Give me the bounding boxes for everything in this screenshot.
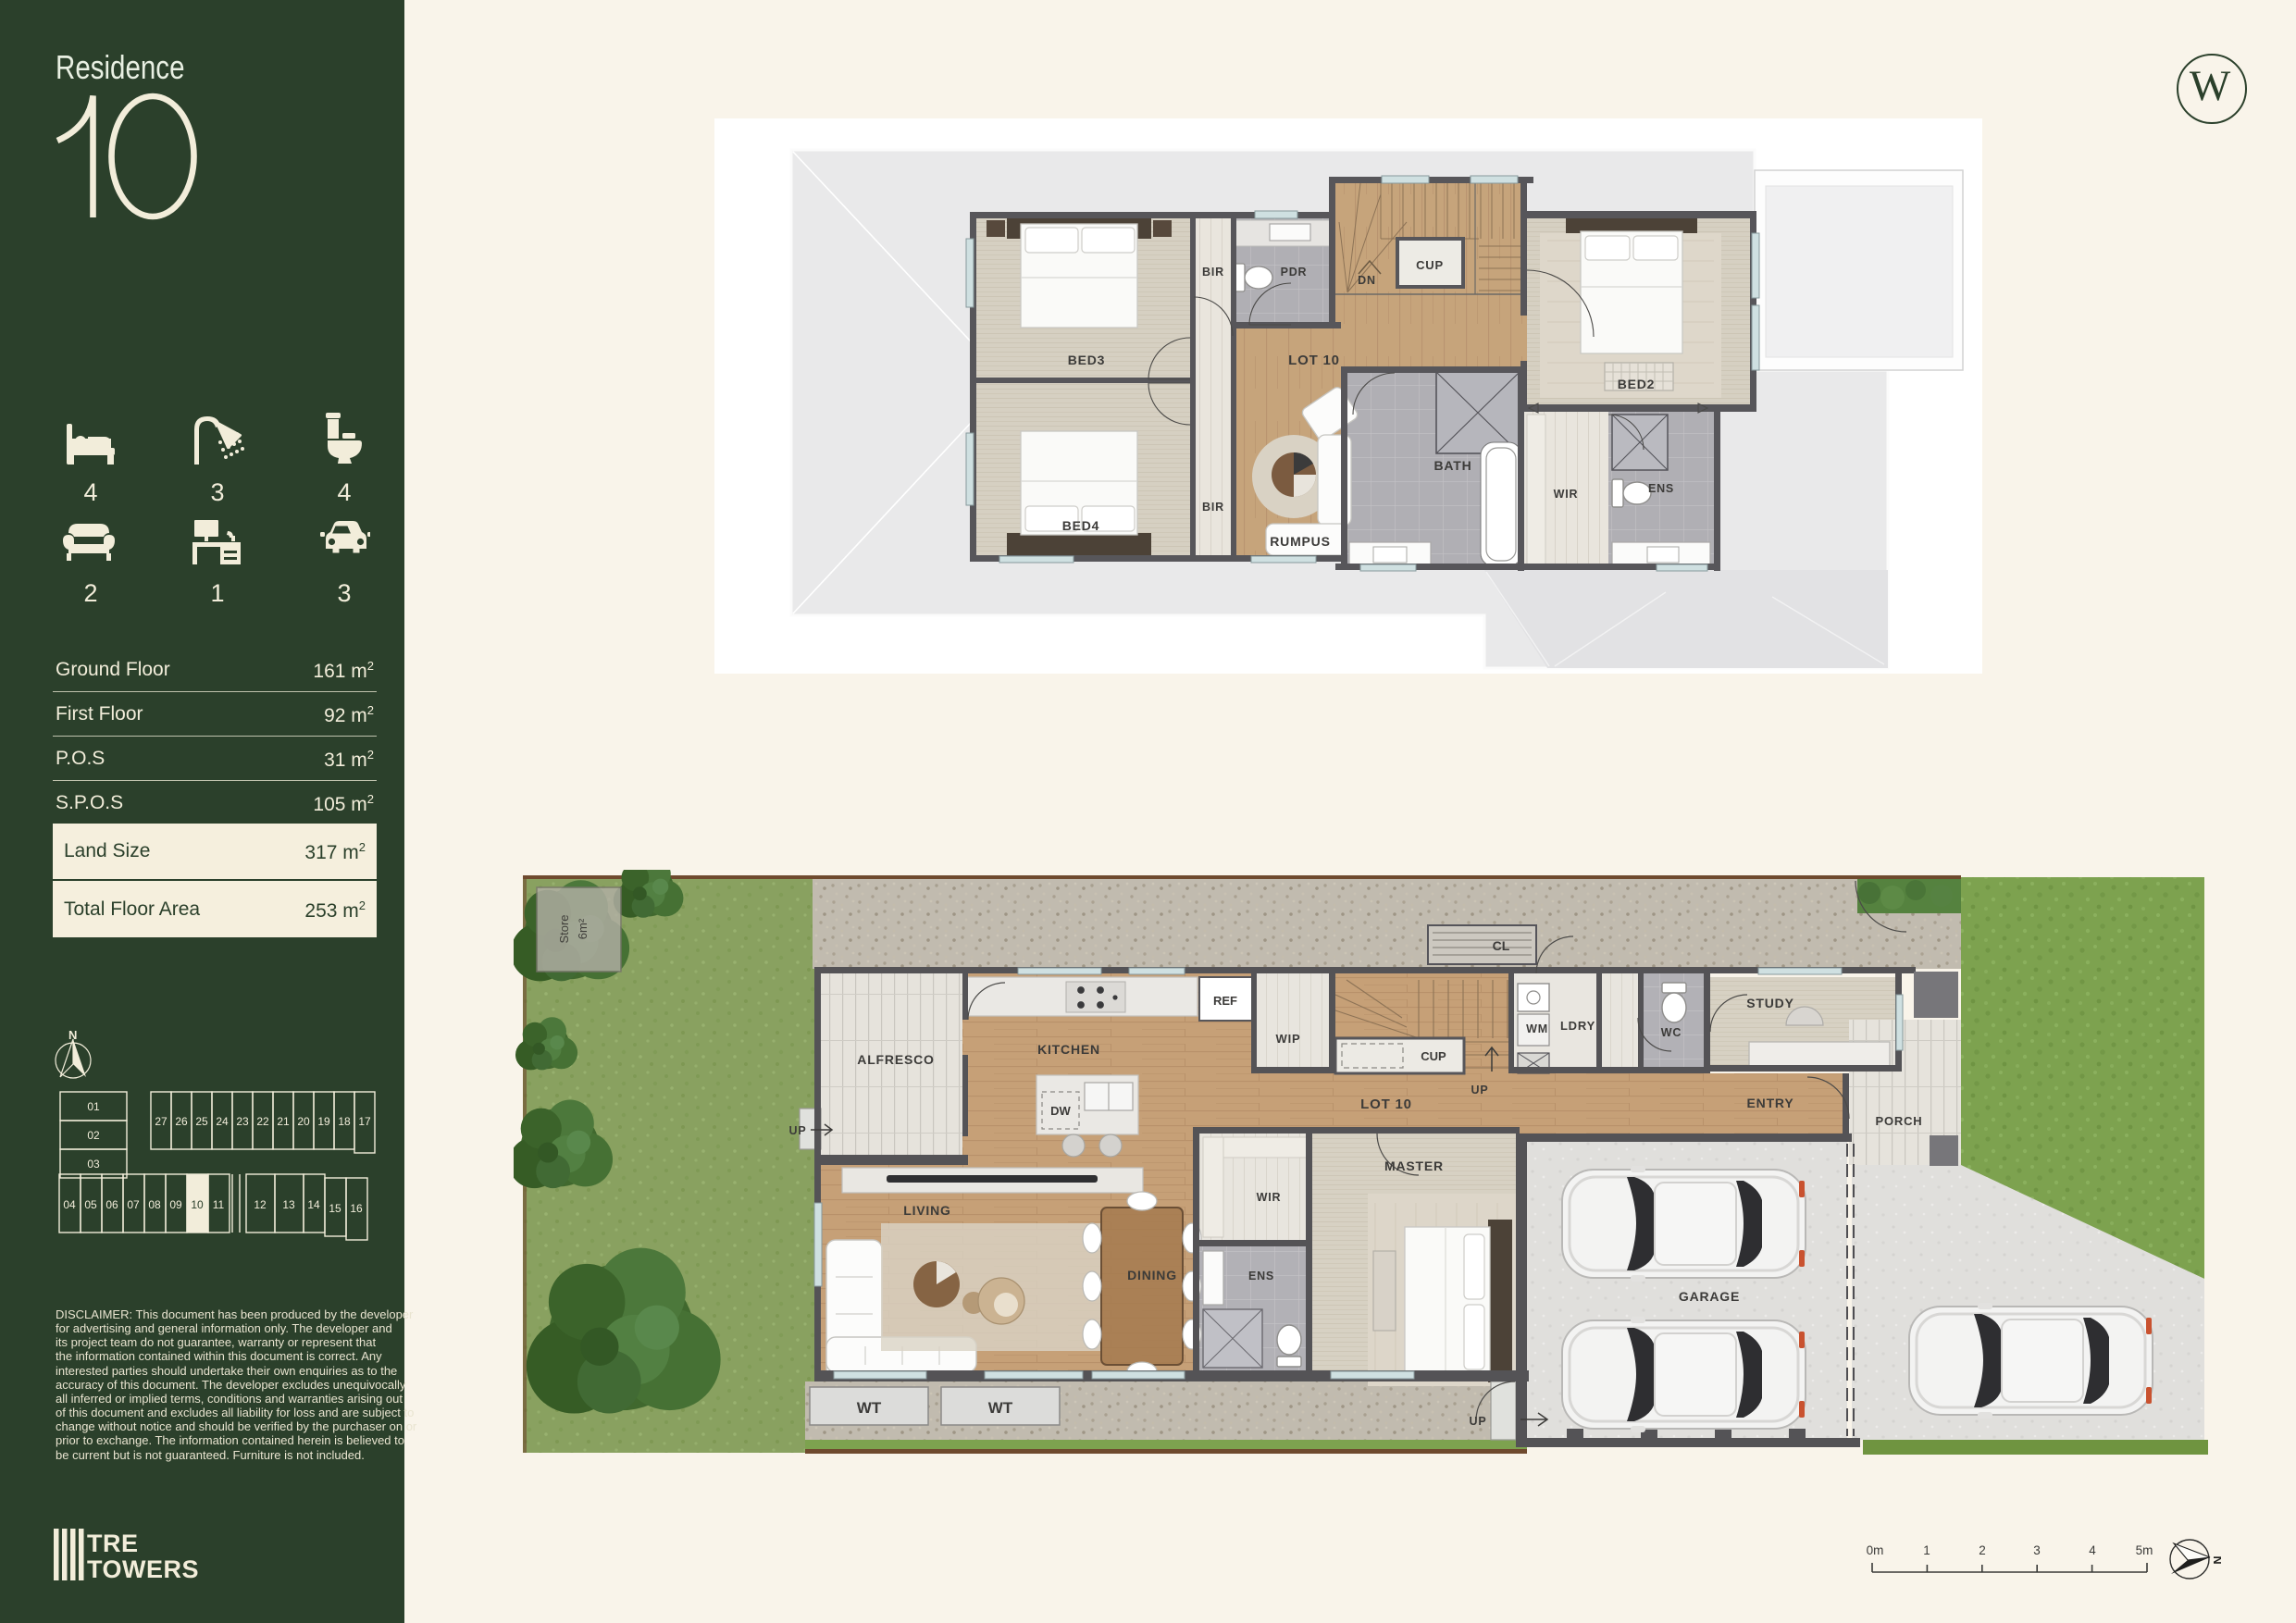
svg-text:6m²: 6m² — [576, 918, 590, 939]
svg-text:CUP: CUP — [1421, 1049, 1446, 1063]
svg-text:WC: WC — [1661, 1026, 1682, 1039]
svg-text:CL: CL — [1493, 938, 1510, 953]
svg-text:4: 4 — [83, 478, 97, 506]
svg-text:2: 2 — [83, 579, 97, 607]
svg-text:14: 14 — [307, 1198, 320, 1211]
svg-text:BATH: BATH — [1433, 458, 1471, 473]
svg-text:WT: WT — [857, 1399, 882, 1417]
svg-text:1: 1 — [1923, 1543, 1930, 1557]
svg-text:LOT 10: LOT 10 — [1360, 1096, 1412, 1112]
svg-text:WT: WT — [988, 1399, 1013, 1417]
svg-text:03: 03 — [87, 1158, 100, 1171]
svg-text:3: 3 — [337, 579, 351, 607]
svg-text:WM: WM — [1526, 1022, 1548, 1035]
svg-text:15: 15 — [329, 1202, 341, 1215]
svg-text:KITCHEN: KITCHEN — [1037, 1042, 1100, 1057]
svg-text:21: 21 — [277, 1115, 290, 1128]
svg-text:BIR: BIR — [1202, 266, 1224, 279]
svg-text:WIR: WIR — [1554, 488, 1579, 501]
svg-text:ENTRY: ENTRY — [1747, 1096, 1794, 1110]
svg-text:05: 05 — [84, 1198, 97, 1211]
svg-text:09: 09 — [169, 1198, 182, 1211]
svg-text:27: 27 — [155, 1115, 168, 1128]
svg-text:4: 4 — [337, 478, 351, 506]
svg-text:UP: UP — [1471, 1084, 1489, 1096]
svg-text:24: 24 — [216, 1115, 229, 1128]
svg-text:RUMPUS: RUMPUS — [1270, 534, 1330, 549]
svg-text:REF: REF — [1213, 994, 1237, 1008]
svg-text:TOWERS: TOWERS — [87, 1555, 199, 1582]
svg-text:01: 01 — [87, 1100, 100, 1113]
svg-text:DW: DW — [1050, 1104, 1071, 1118]
svg-text:22: 22 — [256, 1115, 269, 1128]
svg-text:LOT 10: LOT 10 — [1288, 353, 1340, 368]
svg-text:16: 16 — [350, 1202, 363, 1215]
svg-text:17: 17 — [358, 1115, 371, 1128]
svg-text:25: 25 — [195, 1115, 208, 1128]
svg-text:UP: UP — [1470, 1415, 1487, 1428]
svg-text:ALFRESCO: ALFRESCO — [857, 1052, 934, 1067]
svg-text:TRE: TRE — [87, 1530, 139, 1557]
svg-text:WIP: WIP — [1276, 1032, 1301, 1046]
svg-text:LDRY: LDRY — [1560, 1019, 1595, 1033]
svg-text:MASTER: MASTER — [1384, 1158, 1444, 1173]
svg-text:13: 13 — [282, 1198, 295, 1211]
svg-text:2: 2 — [1979, 1543, 1986, 1557]
svg-text:ENS: ENS — [1648, 482, 1674, 495]
svg-text:Store: Store — [557, 914, 571, 943]
svg-text:BED4: BED4 — [1062, 518, 1100, 533]
svg-text:UP: UP — [789, 1124, 807, 1137]
svg-text:08: 08 — [148, 1198, 161, 1211]
svg-text:02: 02 — [87, 1129, 100, 1142]
svg-text:BIR: BIR — [1202, 501, 1224, 514]
svg-text:07: 07 — [127, 1198, 140, 1211]
svg-text:12: 12 — [254, 1198, 267, 1211]
svg-text:GARAGE: GARAGE — [1679, 1289, 1740, 1304]
svg-text:PDR: PDR — [1281, 266, 1308, 279]
svg-text:04: 04 — [63, 1198, 76, 1211]
svg-text:20: 20 — [297, 1115, 310, 1128]
svg-text:PORCH: PORCH — [1876, 1114, 1923, 1128]
svg-text:18: 18 — [338, 1115, 351, 1128]
svg-text:WIR: WIR — [1257, 1191, 1282, 1204]
svg-text:BED3: BED3 — [1068, 353, 1106, 367]
svg-text:3: 3 — [210, 478, 224, 506]
svg-text:10: 10 — [191, 1198, 204, 1211]
svg-text:N: N — [2211, 1555, 2221, 1564]
svg-text:3: 3 — [2033, 1543, 2041, 1557]
svg-text:DN: DN — [1358, 274, 1376, 287]
svg-text:LIVING: LIVING — [903, 1203, 950, 1218]
svg-text:5m: 5m — [2136, 1543, 2153, 1557]
svg-text:23: 23 — [236, 1115, 249, 1128]
svg-text:0m: 0m — [1867, 1543, 1884, 1557]
svg-text:DINING: DINING — [1127, 1268, 1177, 1282]
svg-text:19: 19 — [317, 1115, 330, 1128]
svg-text:STUDY: STUDY — [1746, 996, 1793, 1010]
svg-text:ENS: ENS — [1248, 1270, 1274, 1282]
svg-text:4: 4 — [2089, 1543, 2096, 1557]
svg-text:CUP: CUP — [1416, 258, 1444, 272]
svg-text:BED2: BED2 — [1618, 377, 1656, 391]
svg-text:06: 06 — [105, 1198, 118, 1211]
svg-text:1: 1 — [210, 579, 224, 607]
svg-text:26: 26 — [175, 1115, 188, 1128]
svg-text:11: 11 — [213, 1198, 225, 1211]
